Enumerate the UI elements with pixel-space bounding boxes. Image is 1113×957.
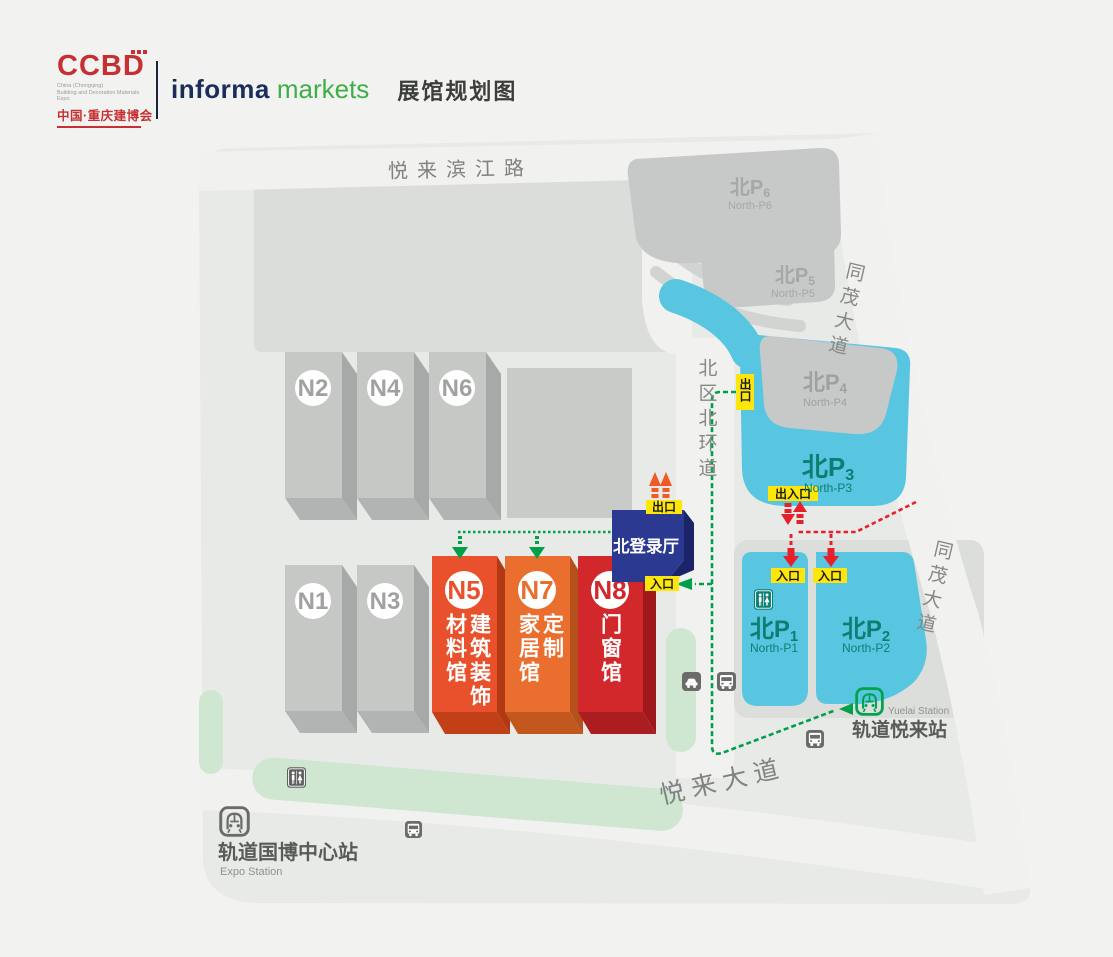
- site-map: N2 N4 N6 N1 N3 N5 建筑装饰 材料馆: [0, 0, 1113, 952]
- svg-text:North-P4: North-P4: [803, 397, 847, 409]
- hall-n6: N6: [429, 352, 501, 520]
- svg-text:N1: N1: [298, 588, 329, 615]
- svg-text:材料馆: 材料馆: [444, 612, 468, 685]
- ccbd-logo: CCBD China (Chongqing) Building and Deco…: [57, 52, 141, 128]
- svg-text:N7: N7: [520, 575, 553, 605]
- svg-text:North-P6: North-P6: [728, 200, 772, 212]
- bus-icon-p2: [806, 730, 824, 748]
- svg-text:North-P1: North-P1: [750, 641, 798, 655]
- ccbd-wordmark: CCBD: [57, 50, 145, 82]
- svg-text:建筑装饰: 建筑装饰: [468, 612, 492, 709]
- page-header: CCBD China (Chongqing) Building and Deco…: [57, 52, 517, 128]
- hall-n7: N7 定制 家居馆: [505, 556, 583, 734]
- hall-n4: N4: [357, 352, 429, 520]
- hall-n1: N1: [285, 565, 357, 733]
- svg-text:定制: 定制: [541, 612, 565, 661]
- ccbd-logo-dots-icon: [131, 50, 147, 54]
- header-divider: [156, 61, 158, 119]
- marker-exit-reghall: 出口: [646, 499, 682, 514]
- svg-text:N3: N3: [370, 588, 401, 615]
- svg-text:北登录厅: 北登录厅: [613, 536, 680, 556]
- toilet-icon-strip: [287, 767, 306, 788]
- svg-text:North-P2: North-P2: [842, 641, 890, 655]
- svg-text:入口: 入口: [818, 569, 842, 583]
- informa-markets-logo: informa markets: [171, 74, 369, 105]
- hall-n8: N8 门窗馆: [578, 556, 656, 734]
- ccbd-subtitle-cn: 中国·重庆建博会: [57, 105, 141, 128]
- svg-text:出口: 出口: [652, 499, 676, 514]
- road-label-riverside: 悦来滨江路: [388, 157, 533, 183]
- svg-text:家居馆: 家居馆: [517, 612, 541, 685]
- green-strip-left: [199, 690, 223, 774]
- page-title: 展馆规划图: [397, 74, 517, 106]
- marker-exit-top: 出口: [736, 374, 754, 410]
- marker-entrance-reghall: 入口: [645, 576, 679, 591]
- bus-icon-ring-road: [717, 672, 736, 691]
- building-block: [507, 368, 632, 518]
- ccbd-subtitle-en: China (Chongqing) Building and Decoratio…: [57, 83, 141, 103]
- svg-text:N4: N4: [370, 375, 401, 402]
- hall-n2: N2: [285, 352, 357, 520]
- svg-text:门窗馆: 门窗馆: [599, 612, 623, 685]
- svg-text:轨道国博中心站: 轨道国博中心站: [218, 840, 358, 864]
- svg-text:Yuelai Station: Yuelai Station: [888, 706, 949, 717]
- svg-text:出口: 出口: [738, 377, 752, 403]
- marker-entrance-p1: 入口: [771, 568, 805, 583]
- north-registration-hall: 北登录厅: [612, 510, 694, 582]
- toilet-icon-p1: [754, 589, 773, 610]
- svg-text:N6: N6: [442, 375, 473, 402]
- svg-text:North-P5: North-P5: [771, 288, 815, 300]
- svg-text:North-P3: North-P3: [804, 481, 852, 495]
- road-label-north-ring: 北区北环道: [696, 358, 718, 483]
- bus-icon-yuelai-ave: [405, 821, 422, 838]
- svg-text:Expo Station: Expo Station: [220, 866, 282, 878]
- marker-entrance-p2: 入口: [813, 568, 847, 583]
- svg-text:入口: 入口: [776, 569, 800, 583]
- hall-n5: N5 建筑装饰 材料馆: [432, 556, 510, 734]
- exhibition-complex-ground: [254, 172, 676, 352]
- svg-text:N5: N5: [447, 575, 480, 605]
- svg-text:N2: N2: [298, 375, 329, 402]
- svg-text:轨道悦来站: 轨道悦来站: [852, 718, 947, 741]
- taxi-icon: [682, 672, 701, 691]
- hall-n3: N3: [357, 565, 429, 733]
- svg-text:入口: 入口: [650, 577, 674, 591]
